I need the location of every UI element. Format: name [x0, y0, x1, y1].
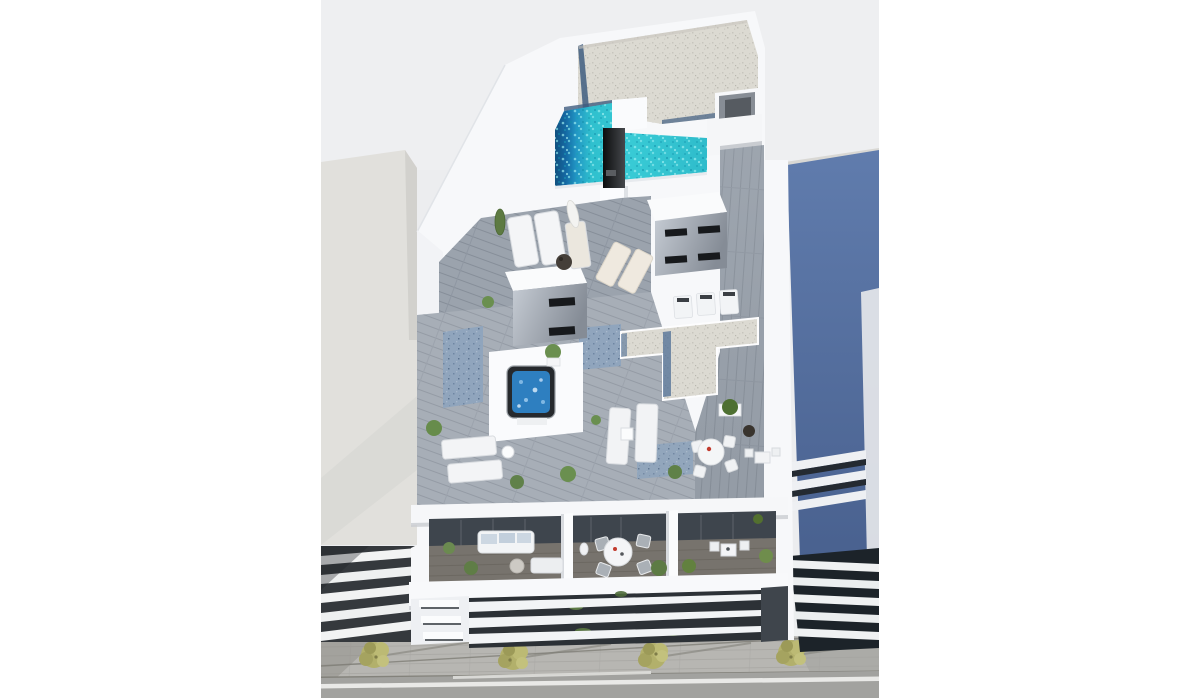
- potted-plant: [753, 514, 763, 524]
- round-table: [698, 439, 724, 465]
- decorative-vase: [580, 543, 588, 555]
- blue-building-lower-slabs: [790, 548, 879, 652]
- potted-plant: [591, 415, 601, 425]
- gravel-planter-wall: [443, 326, 483, 408]
- right-neighbour-building: [785, 148, 879, 652]
- page-canvas: Top-down aerial render of a modern white…: [0, 0, 1200, 698]
- facade-corner-shadow: [761, 586, 788, 642]
- potted-plant: [682, 559, 696, 573]
- potted-plant: [510, 475, 524, 489]
- sun-lounger: [447, 460, 502, 484]
- day-bed: [531, 558, 563, 573]
- stair-bulkhead: [647, 192, 727, 276]
- potted-plant: [560, 466, 576, 482]
- potted-plant: [426, 420, 442, 436]
- potted-plant: [464, 561, 478, 575]
- cypress-tree: [495, 209, 505, 235]
- dark-plant-pot: [556, 254, 572, 270]
- side-table: [621, 428, 633, 440]
- facade-slit-windows: [419, 600, 463, 641]
- potted-plant: [759, 549, 773, 563]
- hot-tub: [489, 342, 583, 442]
- round-table: [604, 538, 632, 566]
- left-building-balcony-slabs: [321, 546, 417, 642]
- potted-plant: [668, 465, 682, 479]
- sun-lounger: [635, 404, 658, 463]
- sun-lounger: [441, 436, 496, 460]
- coffee-table: [510, 559, 524, 573]
- potted-plant: [443, 542, 455, 554]
- stair-bulkhead: [505, 264, 587, 346]
- potted-plant: [482, 296, 494, 308]
- side-table: [502, 446, 514, 458]
- dark-plant-pot: [743, 425, 755, 437]
- potted-plant: [651, 560, 667, 576]
- left-neighbour-building: [321, 150, 417, 642]
- architectural-render-image: Top-down aerial render of a modern white…: [321, 0, 879, 698]
